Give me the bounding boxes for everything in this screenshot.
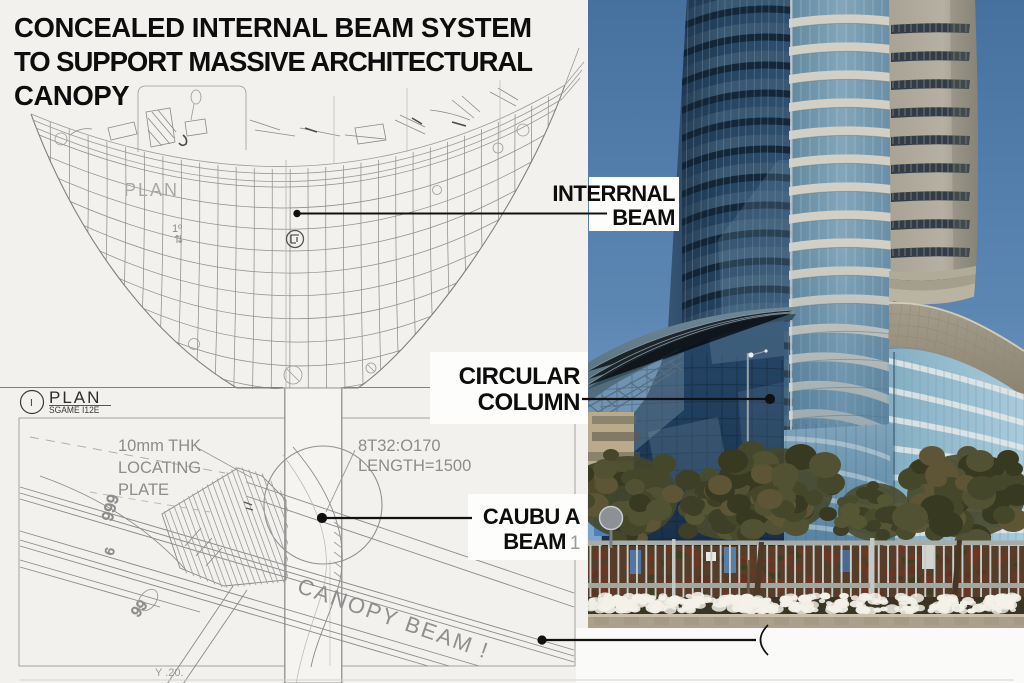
- svg-text:PLATE: PLATE: [118, 481, 169, 499]
- svg-text:LOCATING: LOCATING: [118, 459, 201, 477]
- svg-text:LENGTH=1500: LENGTH=1500: [358, 457, 471, 475]
- svg-text:I: I: [30, 398, 33, 409]
- svg-text:PLAN: PLAN: [124, 180, 179, 200]
- svg-text:10mm THK: 10mm THK: [118, 437, 201, 455]
- svg-text:6: 6: [101, 546, 117, 557]
- svg-text:Y .20.: Y .20.: [155, 667, 184, 679]
- svg-text:⇅: ⇅: [174, 234, 183, 246]
- svg-text:8T32:O170: 8T32:O170: [358, 437, 441, 455]
- svg-text:SGAME I12E: SGAME I12E: [49, 405, 100, 415]
